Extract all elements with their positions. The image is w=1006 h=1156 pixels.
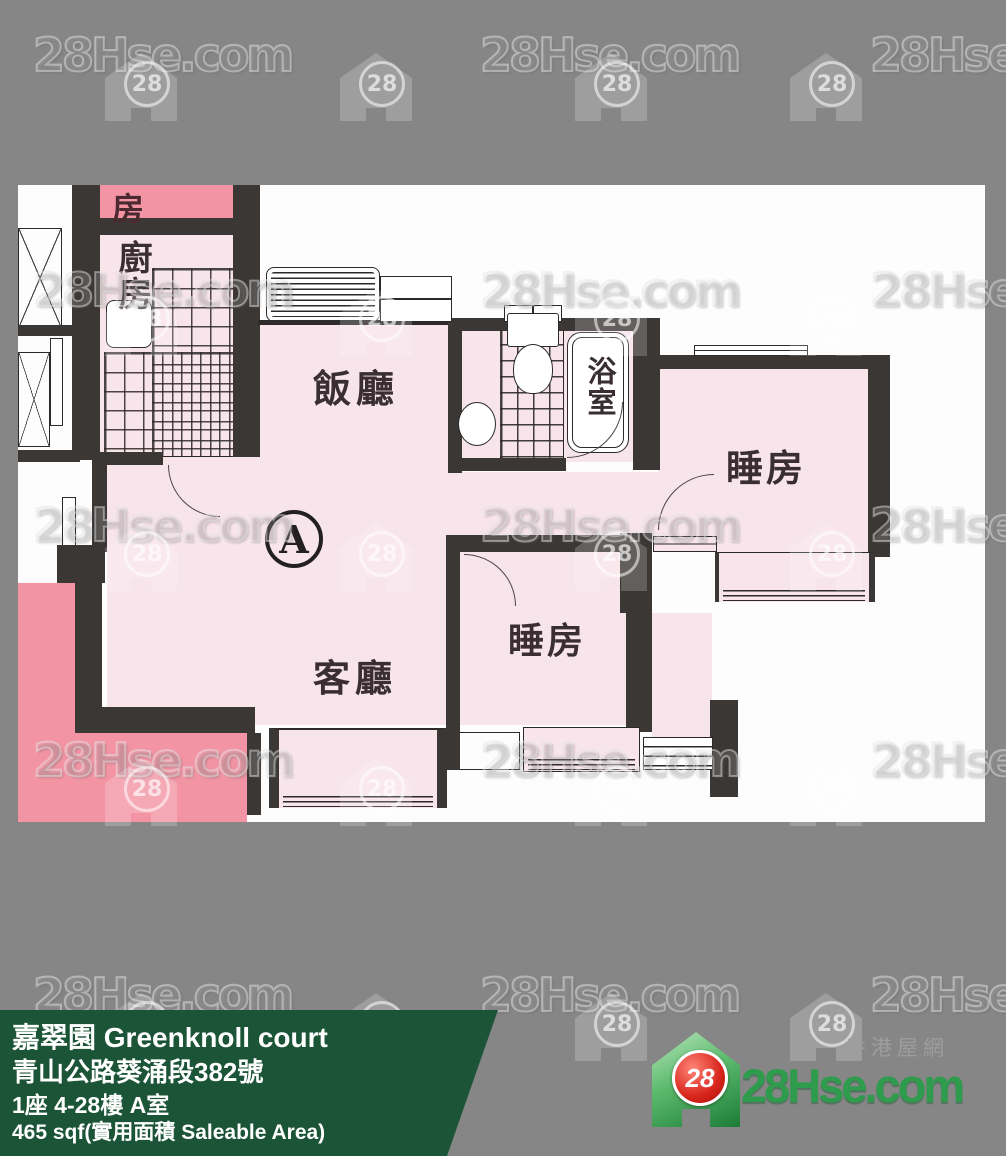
- room-label-bathroom: 浴室: [578, 356, 620, 418]
- watermark-text: 28Hse.com: [870, 263, 1006, 317]
- watermark-badge: 28: [124, 531, 170, 577]
- lift-shaft-icon: [18, 352, 50, 447]
- logo-tagline: 香港屋網: [845, 1032, 949, 1062]
- watermark-text: 28Hse.com: [870, 498, 1006, 552]
- info-banner: 嘉翠園 Greenknoll court 青山公路葵涌段382號 1座 4-28…: [0, 1010, 520, 1156]
- wall: [72, 185, 100, 460]
- watermark-badge: 28: [594, 61, 640, 107]
- watermark-badge: 28: [359, 296, 405, 342]
- wall: [233, 185, 260, 457]
- recess-strip-floor: [652, 613, 712, 737]
- watermark-badge: 28: [359, 766, 405, 812]
- lobby-door-leaf: [50, 338, 63, 426]
- wall: [448, 318, 462, 473]
- wall: [648, 355, 870, 369]
- wall: [75, 707, 255, 733]
- watermark-badge: 28: [809, 61, 855, 107]
- watermark-badge: 28: [124, 296, 170, 342]
- basin-icon: [458, 402, 496, 446]
- watermark-text: 28Hse.com: [870, 968, 1006, 1022]
- room-label-bedroom-middle: 睡房: [508, 612, 586, 664]
- room-label-living: 客廳: [313, 648, 397, 702]
- window-sill-lines: [723, 590, 865, 601]
- watermark-badge: 28: [809, 531, 855, 577]
- watermark-badge: 28: [809, 766, 855, 812]
- block-floor-flat: 1座 4-28樓 A室: [12, 1086, 169, 1120]
- watermark-text: 28Hse.com: [870, 733, 1006, 787]
- watermark-text: 28Hse.com: [870, 28, 1006, 82]
- room-label-bedroom-right: 睡房: [726, 438, 806, 492]
- logo-site-name: 28Hse.com: [741, 1058, 962, 1113]
- watermark-badge: 28: [594, 766, 640, 812]
- watermark-badge: 28: [124, 61, 170, 107]
- kitchen-tile-floor: [104, 352, 235, 457]
- watermark-badge: 28: [594, 296, 640, 342]
- watermark-badge: 28: [124, 766, 170, 812]
- room-label-dining: 飯廳: [313, 358, 399, 413]
- watermark-badge: 28: [359, 531, 405, 577]
- logo-28-badge: 28: [672, 1050, 728, 1106]
- estate-address: 青山公路葵涌段382號: [12, 1052, 263, 1089]
- saleable-area: 465 sqf(實用面積 Saleable Area): [12, 1116, 325, 1146]
- toilet-tank-icon: [507, 313, 559, 347]
- watermark-badge: 28: [594, 1001, 640, 1047]
- room-label-adjacent: 房: [112, 184, 144, 230]
- screenshot-root: 房 廚房 飯廳 浴室 睡房 睡房 客廳 A 28Hse.com 28Hse.co…: [0, 0, 1006, 1156]
- estate-title: 嘉翠園 Greenknoll court: [12, 1016, 328, 1056]
- wall: [75, 560, 102, 710]
- watermark-badge: 28: [809, 296, 855, 342]
- toilet-bowl-icon: [513, 344, 553, 394]
- wall: [448, 458, 566, 471]
- wall: [18, 325, 72, 336]
- wall: [18, 450, 80, 462]
- wall: [446, 535, 460, 770]
- watermark-badge: 28: [359, 61, 405, 107]
- watermark-badge: 28: [594, 531, 640, 577]
